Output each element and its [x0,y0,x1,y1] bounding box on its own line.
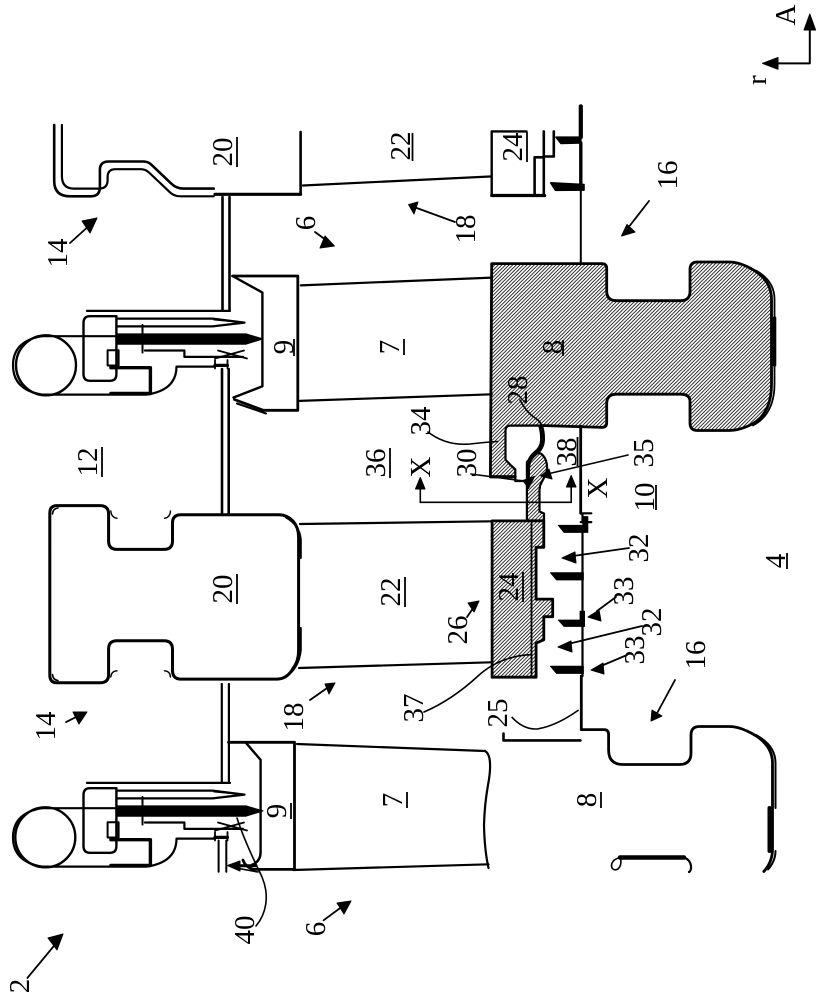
svg-text:20: 20 [207,138,239,167]
svg-text:14: 14 [42,238,74,268]
svg-text:30: 30 [451,449,483,478]
svg-text:32: 32 [636,608,668,637]
svg-text:A: A [770,4,802,25]
svg-text:28: 28 [502,376,534,405]
svg-text:r: r [741,75,773,85]
svg-text:36: 36 [360,449,392,478]
svg-text:8: 8 [571,793,603,808]
svg-text:14: 14 [30,711,62,741]
svg-text:33: 33 [619,636,651,665]
svg-text:25: 25 [482,699,514,728]
svg-text:37: 37 [398,694,430,723]
svg-text:X: X [405,456,437,477]
svg-text:22: 22 [375,578,407,607]
svg-text:16: 16 [680,641,712,670]
svg-text:12: 12 [72,448,104,477]
svg-text:18: 18 [450,215,482,244]
svg-text:32: 32 [623,534,655,563]
svg-text:7: 7 [377,793,409,808]
svg-text:20: 20 [207,575,239,604]
svg-text:7: 7 [374,340,406,355]
svg-text:16: 16 [652,161,684,190]
svg-text:40: 40 [229,916,261,945]
svg-text:24: 24 [497,132,529,162]
svg-text:35: 35 [628,439,660,468]
svg-text:9: 9 [268,340,300,355]
svg-text:18: 18 [278,703,310,732]
svg-text:8: 8 [537,340,569,355]
svg-text:6: 6 [300,922,332,937]
svg-text:X: X [582,477,614,498]
svg-text:33: 33 [608,577,640,606]
svg-text:34: 34 [405,406,437,436]
svg-text:6: 6 [290,216,322,231]
svg-text:2: 2 [4,979,36,994]
svg-text:26: 26 [442,616,474,645]
svg-text:24: 24 [493,572,525,602]
svg-text:9: 9 [261,804,293,819]
